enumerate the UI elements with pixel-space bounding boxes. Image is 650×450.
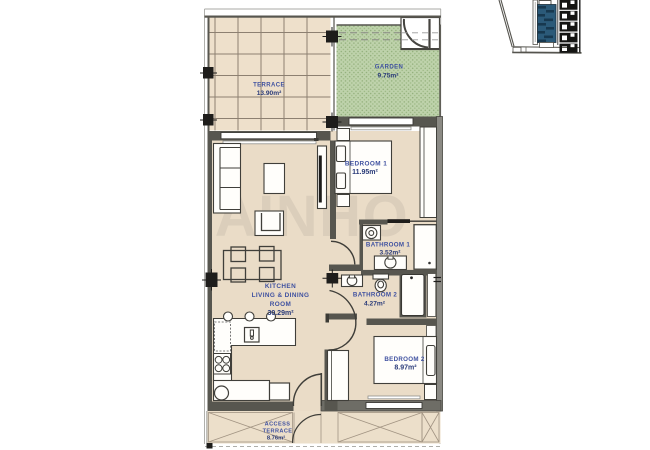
- svg-text:TERRACE: TERRACE: [263, 428, 293, 434]
- svg-text:BEDROOM 2: BEDROOM 2: [384, 356, 424, 363]
- svg-text:3.52m²: 3.52m²: [380, 250, 402, 257]
- svg-text:BATHROOM 2: BATHROOM 2: [353, 292, 397, 299]
- svg-text:GARDEN: GARDEN: [375, 65, 403, 71]
- svg-text:30.29m²: 30.29m²: [267, 310, 294, 317]
- svg-text:8.97m²: 8.97m²: [394, 365, 417, 372]
- svg-text:8.76m²: 8.76m²: [267, 435, 285, 442]
- svg-text:TERRACE: TERRACE: [253, 83, 285, 89]
- svg-text:11.95m²: 11.95m²: [352, 169, 378, 176]
- svg-text:4.27m²: 4.27m²: [364, 301, 386, 308]
- svg-text:BEDROOM 1: BEDROOM 1: [345, 161, 387, 168]
- svg-text:BATHROOM 1: BATHROOM 1: [366, 242, 410, 249]
- svg-text:KITCHEN: KITCHEN: [265, 283, 296, 290]
- svg-text:ACCESS: ACCESS: [265, 422, 291, 428]
- svg-text:ROOM: ROOM: [270, 301, 291, 308]
- svg-text:LIVING & DINING: LIVING & DINING: [252, 292, 310, 299]
- svg-text:9.75m²: 9.75m²: [378, 73, 400, 80]
- svg-text:13.90m²: 13.90m²: [257, 90, 282, 97]
